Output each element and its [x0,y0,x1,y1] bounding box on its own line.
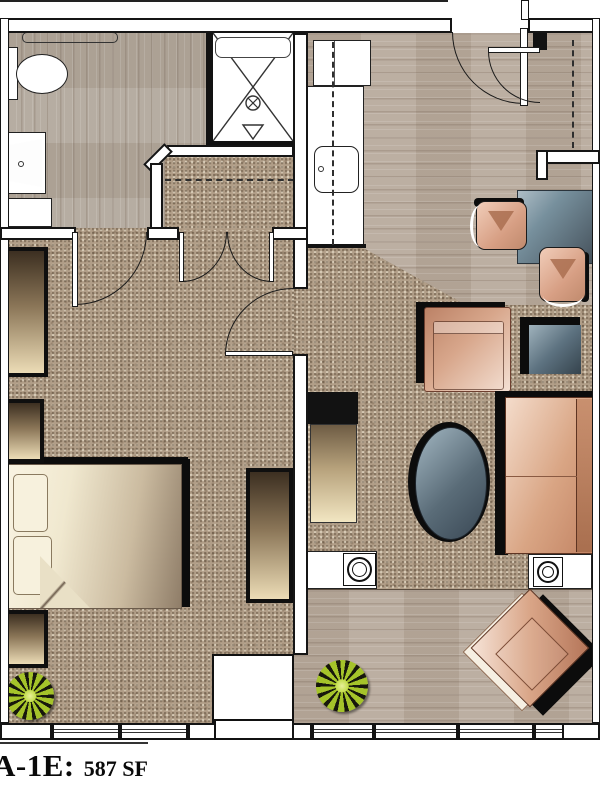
faucet-dot [318,166,324,172]
faucet-dot [18,161,24,167]
sofa [505,397,593,554]
refrigerator-door-line [334,41,335,85]
exterior-wall-top [0,18,452,33]
window-pane [122,729,186,733]
wardrobe [246,468,293,603]
toilet-bowl [16,54,68,94]
window-band [374,723,458,740]
shower-bench [215,37,291,58]
exterior-wall-left [0,18,9,723]
corridor-stub [521,0,529,20]
window-band [312,723,374,740]
floor-transition-line [306,589,592,590]
bathroom-door-leaf [72,232,78,307]
closet-south-jamb [272,227,308,240]
window-band [52,723,120,740]
vanity-sink [6,139,42,187]
speaker-ring-inner [542,566,554,578]
bathroom-south-wall [0,227,76,240]
sofa-seat-divider [506,476,577,477]
dining-chair [476,201,527,250]
armchair-cushion [433,321,504,390]
bath-shelf [22,32,118,43]
window-pane [376,729,456,733]
sill-line [0,742,148,744]
window-pane [54,729,118,733]
entry-closet-stub [536,150,548,180]
closet-north-wall [167,145,294,157]
window-band [120,723,188,740]
alcove [212,654,294,724]
potted-plant [316,660,368,712]
armchair-back-bar [434,322,503,334]
sofa-back-cushion [576,399,592,552]
speaker [533,557,563,587]
exterior-wall-top [528,18,600,33]
shower-wall-west [206,33,213,148]
closet-rod-dashed-line [165,179,294,181]
closet-door-leaf [269,232,274,282]
refrigerator [313,40,371,86]
exterior-wall-bottom [0,723,52,740]
entry-closet-door-leaf [488,47,540,53]
dining-chair-cushion [488,211,514,231]
tv [308,392,358,424]
tv-console [310,424,357,523]
armchair [424,307,511,392]
coffee-table [415,427,487,540]
wall-pier [188,723,216,740]
potted-plant [6,672,54,720]
kitchen-west-wall [293,33,308,289]
unit-label: A-1E:587 SF [0,748,148,784]
floor-plan: A-1E:587 SF [0,0,600,800]
closet-door-leaf [179,232,184,282]
window-pane [460,729,532,733]
entry-closet-rod-dashed-line [572,40,574,148]
window-band [534,723,564,740]
window-band [458,723,534,740]
unit-area: 587 SF [84,756,148,781]
patio-door [214,719,294,740]
bedroom-door-leaf [225,351,293,356]
upper-cabinet-dashed-line [332,42,334,245]
kitchen-sink [314,146,359,193]
closet-west-wall [150,163,163,229]
exterior-wall-right [592,18,600,723]
dining-chair-cushion [550,259,576,279]
exterior-wall-bottom [562,723,600,740]
closet-floor [165,150,294,230]
unit-name: A-1E: [0,748,75,783]
window-pane [536,729,562,733]
window-pane [314,729,372,733]
kitchen-counter-edge [306,244,366,248]
wall-pier [292,723,312,740]
roof-line [0,0,448,2]
speaker-ring-inner [352,562,367,577]
dining-chair [539,247,586,302]
side-table [529,325,581,374]
bedroom-east-wall [293,354,308,655]
bed-pillow [13,474,48,532]
speaker [343,553,376,586]
